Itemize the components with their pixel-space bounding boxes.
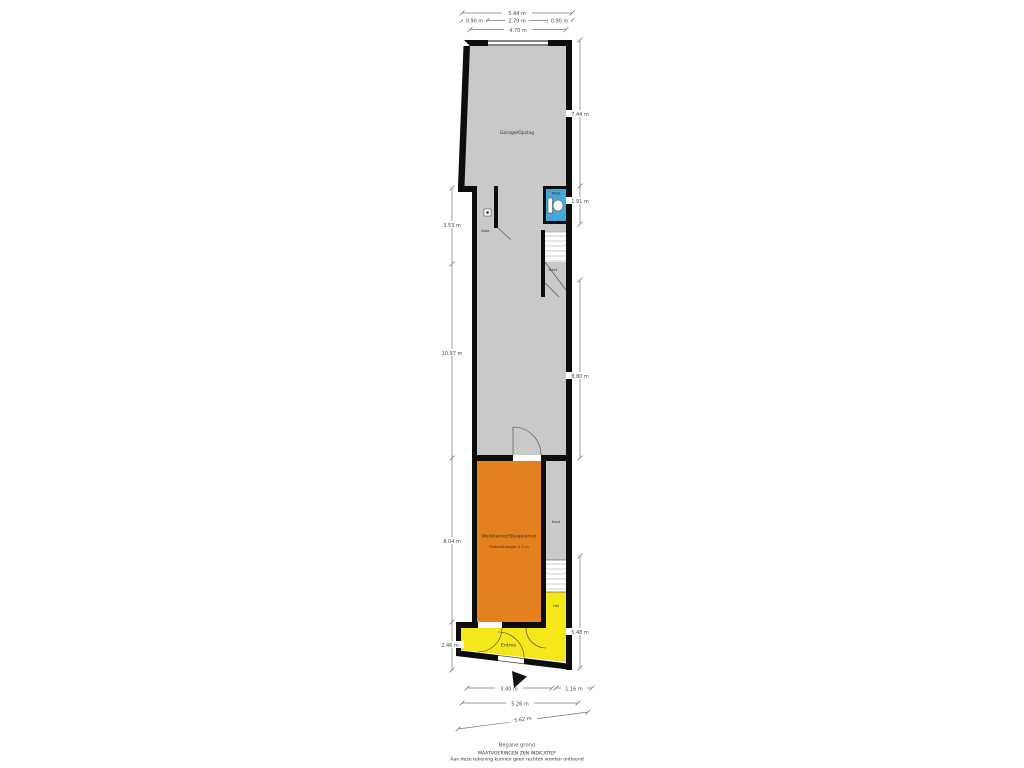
- dim-bottom-total: 5.26 m: [511, 701, 529, 707]
- wall-toilet-left: [543, 186, 546, 224]
- kast-understairs-label: Kast: [549, 267, 558, 272]
- wall-right: [566, 40, 572, 670]
- disclaimer-line1: MAATVOERINGEN ZIJN INDICATIEF: [478, 751, 556, 757]
- footer: Begane grond MAATVOERINGEN ZIJN INDICATI…: [450, 743, 583, 763]
- dim-right-bottom: 5.48 m: [571, 630, 589, 636]
- wall-orange-bottom-right: [502, 622, 546, 628]
- dim-top-left: 0.90 m: [466, 19, 484, 25]
- dim-bottom-diag-group: 5.62 m: [508, 713, 537, 724]
- dim-left-mid: 10.97 m: [442, 351, 463, 357]
- floorplan-drawing: Garage/Opslag Kast Toilet Kast Werkkamer…: [0, 0, 1024, 768]
- wall-toilet-bottom: [543, 221, 566, 224]
- garage-label: Garage/Opslag: [500, 130, 534, 136]
- floor-title: Begane grond: [499, 743, 535, 749]
- wall-left-mid: [472, 192, 477, 622]
- floorplan-page: Garage/Opslag Kast Toilet Kast Werkkamer…: [0, 0, 1024, 768]
- meter-cupboard-dot: [486, 211, 488, 213]
- room-hal: [546, 592, 566, 628]
- dim-bottom-diag: 5.62 m: [514, 716, 532, 724]
- entree-label: Entree: [501, 643, 516, 649]
- garage-door-opening: [488, 41, 548, 46]
- dim-right-mid: 8.80 m: [571, 374, 589, 380]
- dim-top-mid: 2.79 m: [508, 19, 526, 25]
- wall-mid-horizontal-left: [477, 455, 513, 461]
- dim-right-top: 7.44 m: [571, 112, 589, 118]
- dim-right-toilet: 1.91 m: [571, 199, 589, 205]
- stairs-lower: [546, 560, 566, 592]
- kast-mid-label: Kast: [552, 519, 561, 524]
- dim-top-right: 0.90 m: [551, 19, 569, 25]
- room-kast-mid: [546, 461, 566, 560]
- hal-label: Hal: [553, 603, 559, 608]
- toilet-tank-icon: [548, 198, 553, 213]
- wall-orange-bottom-left: [456, 622, 478, 628]
- dim-top-total: 5.44 m: [508, 11, 526, 17]
- dim-bottom-left: 3.40 m: [500, 686, 518, 692]
- wall-toilet-top: [543, 186, 566, 189]
- werkkamer-sublabel: Plafondhoogte 2.5 m: [489, 544, 529, 549]
- wall-divider: [541, 461, 546, 622]
- room-werkkamer: [477, 461, 541, 622]
- werkkamer-label: Werkkamer/Slaapkamer: [481, 534, 536, 540]
- stairs-upper: [545, 232, 566, 262]
- wall-step: [458, 186, 477, 192]
- wall-stairs-left: [541, 230, 545, 297]
- wall-mid-horizontal-right: [541, 455, 566, 461]
- dim-top-inner: 4.70 m: [509, 28, 527, 34]
- dim-bottom-right: 1.16 m: [565, 686, 583, 692]
- toilet-label: Toilet: [551, 192, 561, 196]
- dim-left-bottom: 2.46 m: [441, 643, 459, 649]
- dim-left-upper: 3.53 m: [443, 223, 461, 229]
- disclaimer-line2: Aan deze tekening kunnen geen rechten wo…: [450, 757, 583, 763]
- toilet-bowl-icon: [553, 200, 563, 211]
- dim-left-lower: 8.04 m: [443, 539, 461, 545]
- kast-top-label: Kast: [481, 228, 490, 233]
- wall-kast-top-right: [494, 186, 498, 228]
